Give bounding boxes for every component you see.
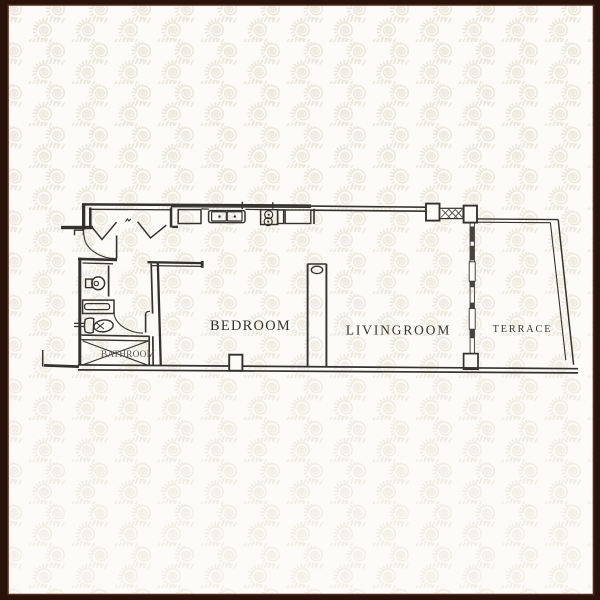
svg-text:LIVINGROOM: LIVINGROOM: [346, 323, 451, 338]
svg-text:BEDROOM: BEDROOM: [210, 318, 291, 334]
svg-text:BATHROOM: BATHROOM: [101, 350, 156, 360]
svg-text:TERRACE: TERRACE: [493, 324, 553, 335]
